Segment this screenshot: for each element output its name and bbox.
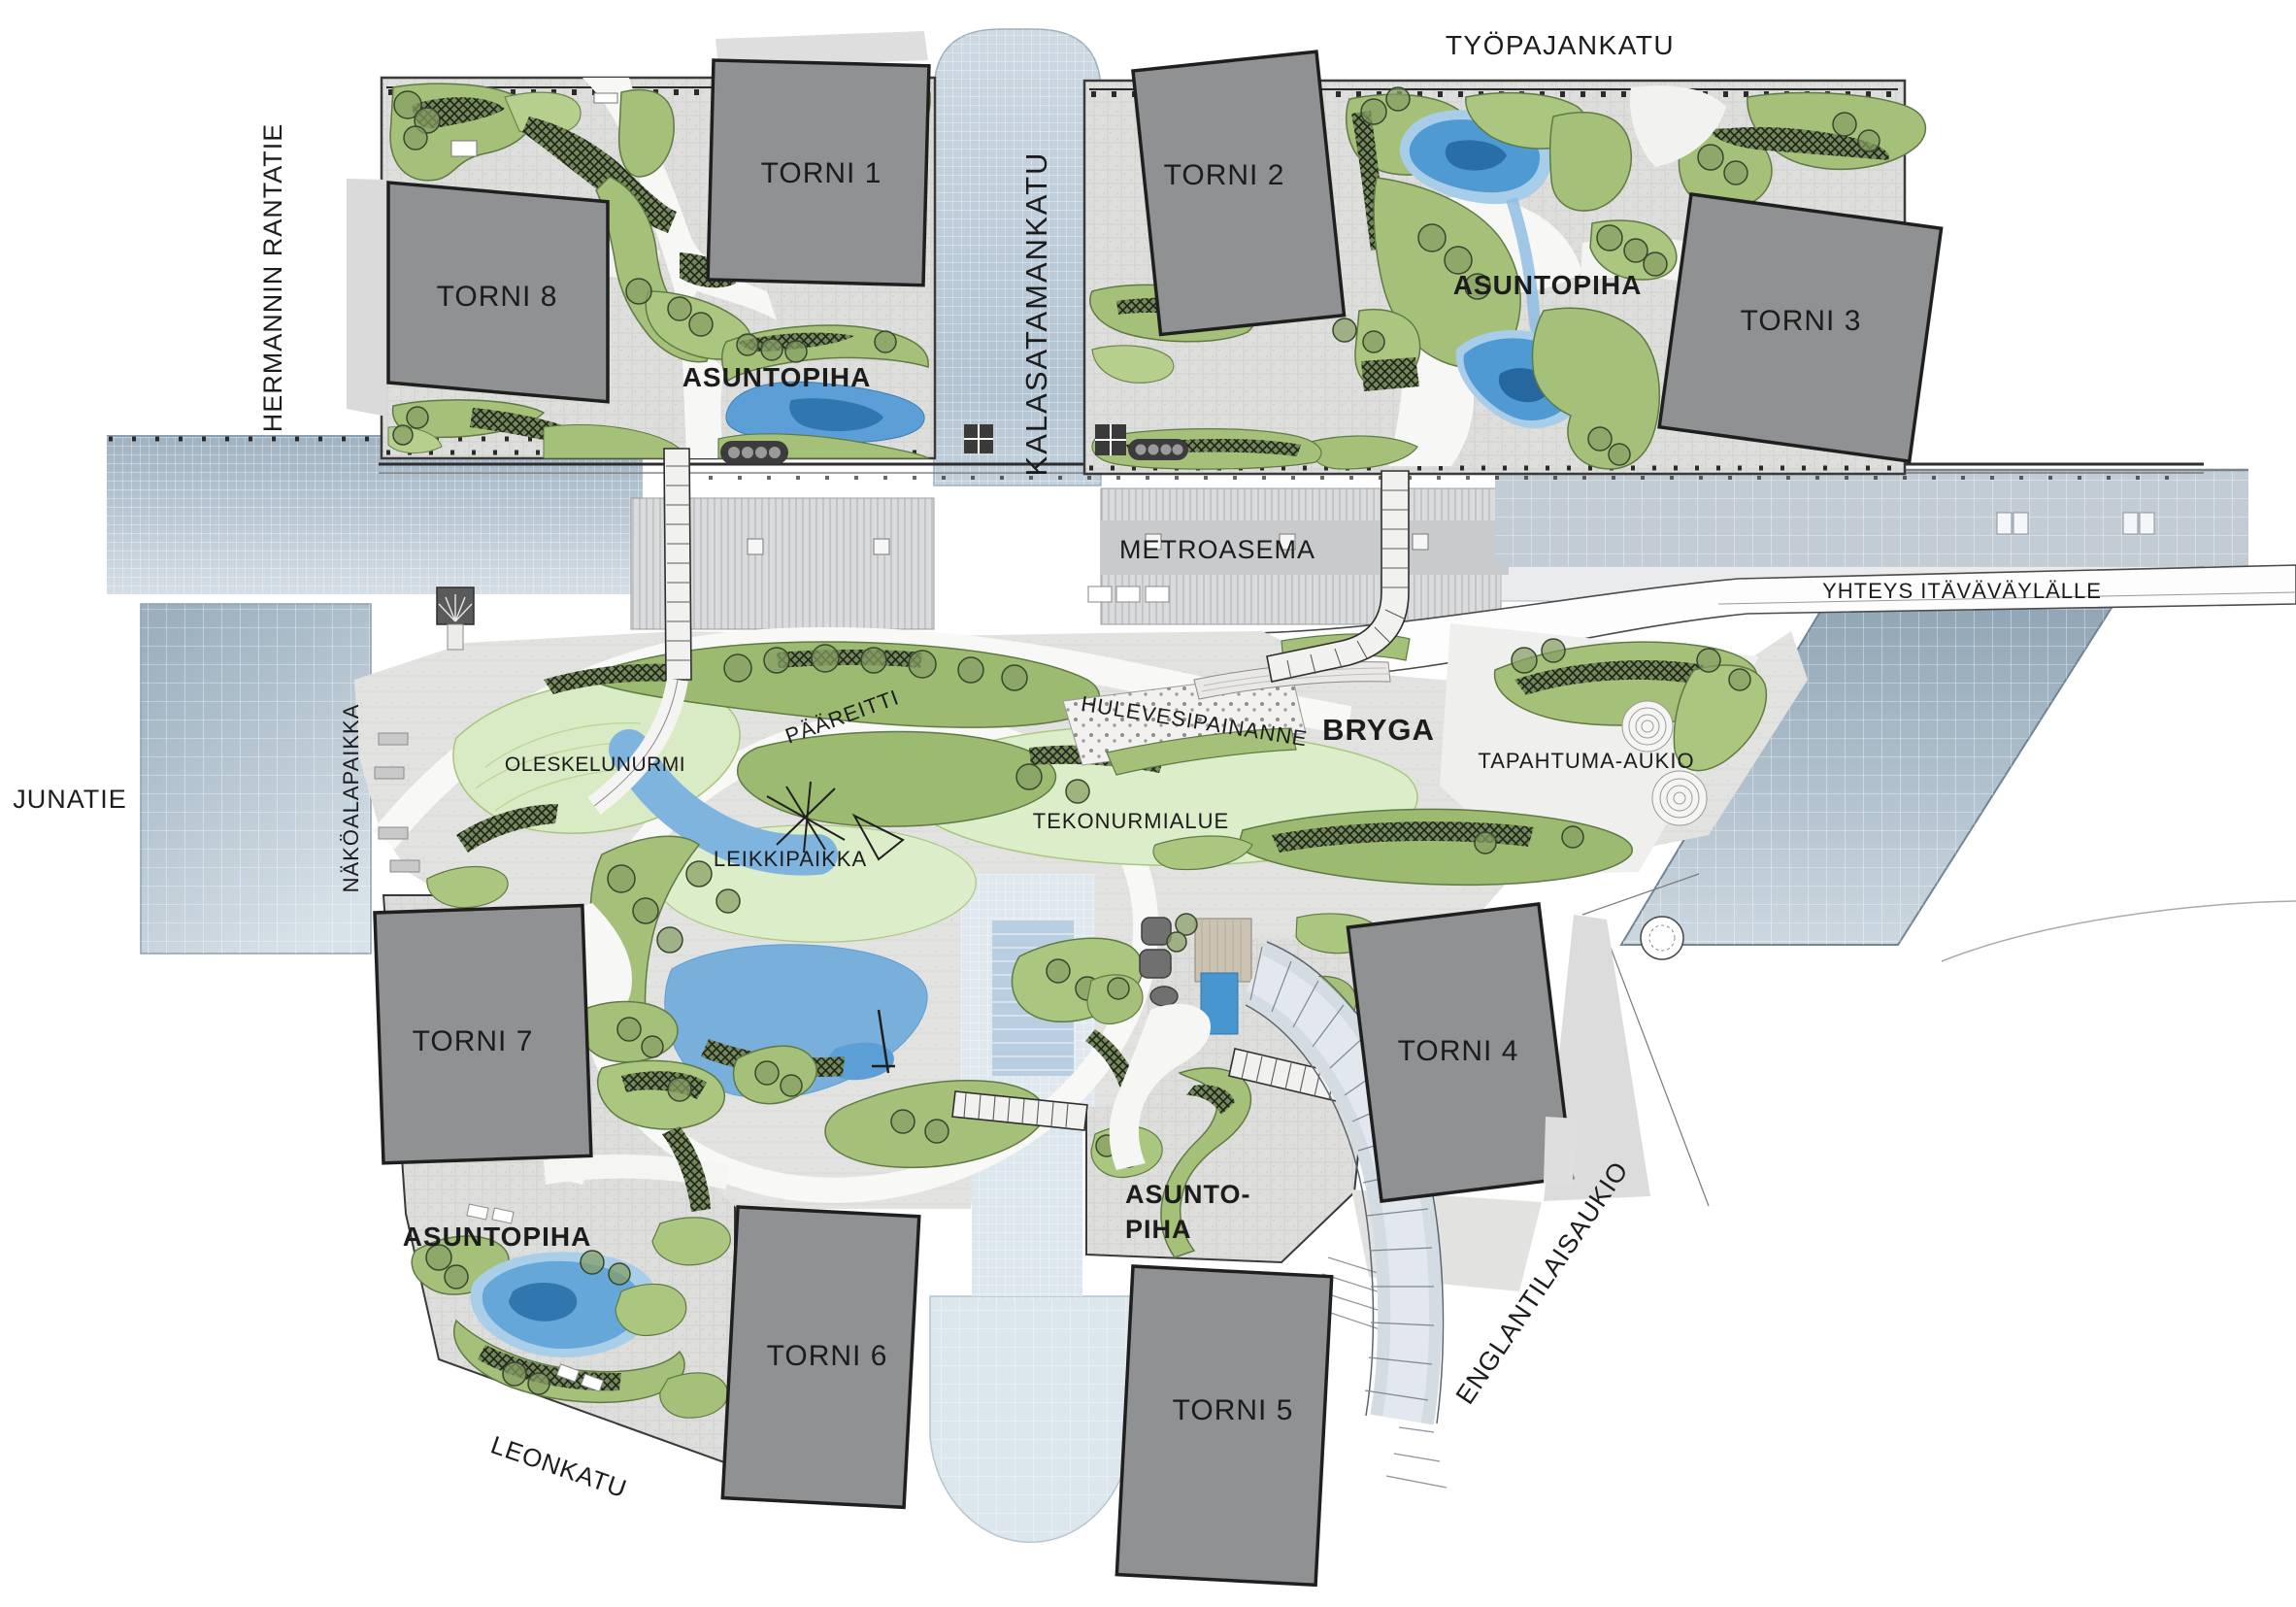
svg-text:TYÖPAJANKATU: TYÖPAJANKATU: [1446, 30, 1675, 60]
svg-text:PIHA: PIHA: [1125, 1215, 1192, 1244]
svg-text:TORNI 2: TORNI 2: [1164, 159, 1285, 191]
svg-text:TEKONURMIALUE: TEKONURMIALUE: [1033, 809, 1229, 833]
svg-text:KALASATAMANKATU: KALASATAMANKATU: [1019, 151, 1053, 477]
svg-text:TAPAHTUMA-AUKIO: TAPAHTUMA-AUKIO: [1478, 749, 1694, 773]
svg-text:OLESKELUNURMI: OLESKELUNURMI: [505, 753, 685, 776]
svg-text:NÄKÖALAPAIKKA: NÄKÖALAPAIKKA: [339, 704, 363, 893]
svg-text:TORNI 3: TORNI 3: [1741, 305, 1862, 337]
svg-text:YHTEYS ITÄVÄVÄYLÄLLE: YHTEYS ITÄVÄVÄYLÄLLE: [1822, 579, 2102, 603]
svg-text:TORNI 7: TORNI 7: [413, 1025, 534, 1057]
svg-text:TORNI 1: TORNI 1: [761, 157, 882, 189]
svg-text:TORNI 8: TORNI 8: [437, 281, 558, 313]
svg-text:ASUNTO-: ASUNTO-: [1125, 1180, 1251, 1209]
svg-text:BRYGA: BRYGA: [1322, 713, 1435, 747]
svg-text:ASUNTOPIHA: ASUNTOPIHA: [1453, 270, 1643, 300]
svg-text:TORNI 5: TORNI 5: [1173, 1394, 1294, 1426]
svg-text:HERMANNIN RANTATIE: HERMANNIN RANTATIE: [258, 123, 287, 433]
svg-text:METROASEMA: METROASEMA: [1119, 535, 1315, 564]
svg-text:TORNI 6: TORNI 6: [767, 1340, 888, 1372]
svg-text:ASUNTOPIHA: ASUNTOPIHA: [403, 1222, 592, 1252]
svg-text:LEIKKIPAIKKA: LEIKKIPAIKKA: [714, 847, 867, 871]
svg-text:TORNI 4: TORNI 4: [1398, 1035, 1519, 1067]
svg-text:ASUNTOPIHA: ASUNTOPIHA: [682, 362, 872, 392]
svg-text:JUNATIE: JUNATIE: [13, 785, 127, 814]
